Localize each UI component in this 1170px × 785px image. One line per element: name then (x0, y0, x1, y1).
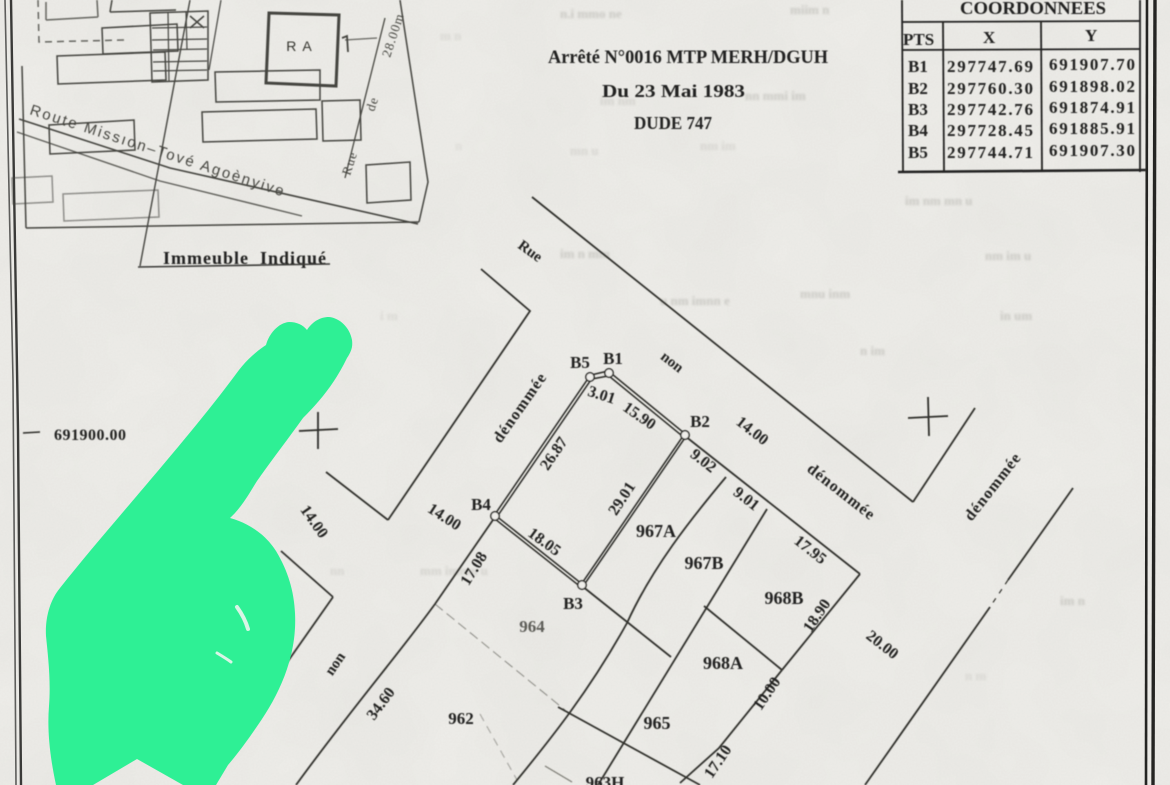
svg-text:Y: Y (1085, 26, 1097, 45)
svg-text:m n: m n (440, 28, 462, 43)
svg-text:B2: B2 (690, 412, 710, 431)
svg-text:u nm imnn e: u nm imnn e (660, 293, 730, 308)
svg-text:n.i mmo ne: n.i mmo ne (560, 6, 622, 21)
svg-text:B1: B1 (603, 349, 623, 368)
svg-text:PTS: PTS (903, 30, 934, 49)
svg-text:miim n: miim n (790, 2, 830, 17)
svg-text:nm im: nm im (700, 138, 736, 153)
svg-text:mnu inm: mnu inm (800, 286, 850, 301)
svg-text:in um: in um (1000, 308, 1032, 323)
svg-text:691907.70: 691907.70 (1049, 55, 1135, 74)
svg-text:nn mmi im: nn mmi im (745, 88, 806, 103)
svg-text:691907.30: 691907.30 (1049, 141, 1135, 160)
svg-text:B5: B5 (908, 143, 928, 162)
svg-text:691874.91: 691874.91 (1049, 98, 1135, 117)
svg-text:297742.76: 297742.76 (947, 100, 1033, 119)
svg-text:B4: B4 (471, 495, 491, 514)
svg-text:B2: B2 (908, 79, 928, 98)
svg-text:B1: B1 (908, 57, 928, 76)
svg-text:COORDONNEES: COORDONNEES (960, 0, 1106, 18)
svg-text:B5: B5 (570, 353, 590, 372)
svg-text:B3: B3 (908, 100, 928, 119)
svg-text:963H: 963H (586, 773, 625, 785)
svg-text:mn u: mn u (570, 143, 599, 158)
svg-text:B3: B3 (563, 594, 583, 613)
svg-text:n m: n m (965, 668, 986, 683)
svg-text:B4: B4 (908, 121, 928, 140)
svg-text:X: X (983, 28, 996, 47)
svg-text:nm im u: nm im u (985, 248, 1031, 263)
svg-text:nn: nn (330, 563, 345, 578)
svg-text:n im: n im (860, 343, 885, 358)
svg-text:968A: 968A (703, 653, 743, 673)
svg-text:962: 962 (448, 709, 474, 728)
svg-text:967B: 967B (684, 553, 723, 573)
svg-text:297728.45: 297728.45 (947, 121, 1033, 140)
svg-text:RA: RA (286, 38, 317, 54)
svg-text:im n: im n (1060, 593, 1086, 608)
svg-text:691898.02: 691898.02 (1049, 77, 1135, 96)
svg-text:DUDE 747: DUDE 747 (634, 113, 712, 133)
svg-text:im nm mn u: im nm mn u (905, 193, 973, 208)
svg-text:965: 965 (644, 713, 671, 733)
svg-text:i m: i m (380, 308, 398, 323)
svg-text:967A: 967A (636, 521, 676, 541)
svg-text:968B: 968B (764, 588, 803, 608)
svg-text:691900.00: 691900.00 (54, 427, 127, 444)
svg-text:691885.91: 691885.91 (1049, 119, 1135, 138)
svg-text:n: n (455, 138, 463, 153)
svg-text:297747.69: 297747.69 (947, 57, 1033, 76)
svg-text:Du 23 Mai 1983: Du 23 Mai 1983 (602, 81, 745, 101)
svg-text:964: 964 (519, 617, 545, 636)
svg-text:Arrêté N°0016 MTP MERH/DGUH: Arrêté N°0016 MTP MERH/DGUH (548, 47, 828, 68)
svg-text:297744.71: 297744.71 (947, 143, 1033, 162)
svg-text:297760.30: 297760.30 (947, 79, 1033, 98)
